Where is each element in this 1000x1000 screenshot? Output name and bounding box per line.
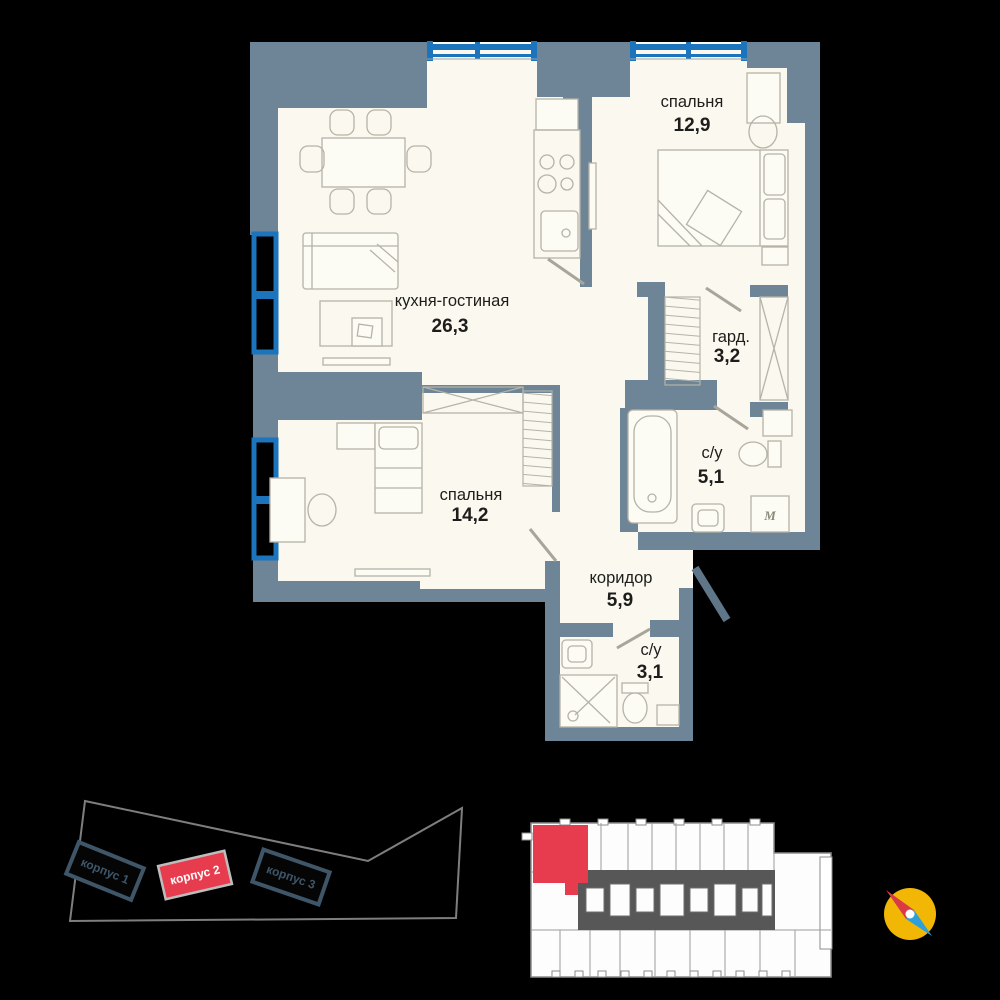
room-area-kitchen-living: 26,3 <box>432 316 469 337</box>
floor-overview <box>522 819 832 977</box>
window-left-upper-icon <box>254 234 276 352</box>
room-label-bedroom-1: спальня <box>661 93 724 111</box>
washer-icon: M <box>763 508 776 523</box>
building-korpus-2[interactable]: корпус 2 <box>158 851 232 899</box>
apartment-plan-page: M <box>0 0 1000 1000</box>
building-korpus-1[interactable]: корпус 1 <box>66 842 144 900</box>
room-area-corridor: 5,9 <box>607 590 633 611</box>
room-area-bedroom-1: 12,9 <box>674 115 711 136</box>
room-area-bedroom-2: 14,2 <box>452 505 489 526</box>
building-korpus-3[interactable]: корпус 3 <box>252 850 329 905</box>
room-area-bathroom-2: 3,1 <box>637 662 664 683</box>
room-area-wardrobe: 3,2 <box>714 346 740 367</box>
room-area-bathroom-1: 5,1 <box>698 467 725 488</box>
entrance-door-icon <box>695 568 727 620</box>
room-label-kitchen-living: кухня-гостиная <box>395 292 510 310</box>
compass-icon <box>884 888 936 940</box>
floor-plan: M <box>250 41 820 741</box>
room-label-bedroom-2: спальня <box>440 486 503 504</box>
room-label-bathroom-2: с/у <box>640 641 662 659</box>
room-label-bathroom-1: с/у <box>701 444 723 462</box>
room-label-wardrobe: гард. <box>712 328 750 346</box>
room-label-corridor: коридор <box>590 569 653 587</box>
site-plan: корпус 1 корпус 2 корпус 3 <box>66 801 462 921</box>
